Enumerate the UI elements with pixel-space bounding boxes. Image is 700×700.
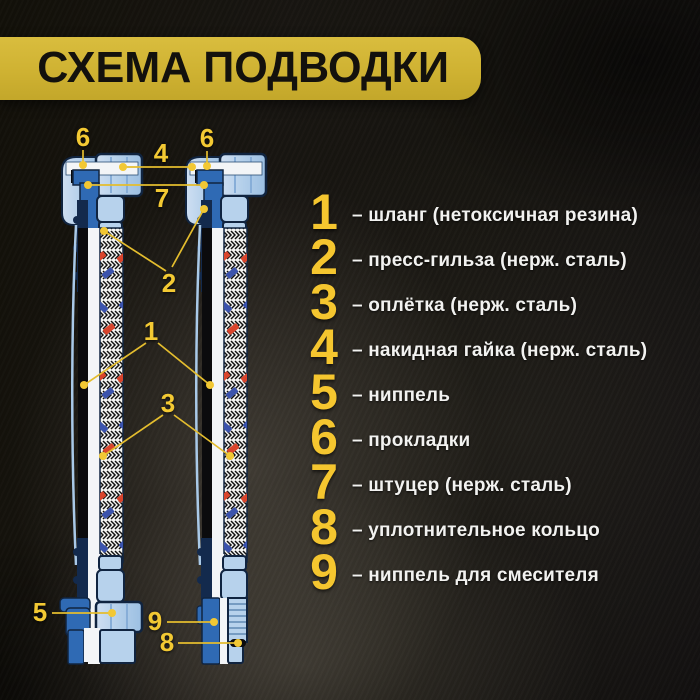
legend-label: – оплётка (нерж. сталь)	[352, 288, 577, 317]
legend-item: 4 – накидная гайка (нерж. сталь)	[306, 325, 698, 370]
legend-item: 1 – шланг (нетоксичная резина)	[306, 190, 698, 235]
legend-item: 5 – ниппель	[306, 370, 698, 415]
callout-label-1: 1	[144, 318, 158, 344]
infographic: СХЕМА ПОДВОДКИ	[0, 0, 700, 700]
legend-label: – штуцер (нерж. сталь)	[352, 468, 572, 497]
callout-label-3: 3	[161, 390, 175, 416]
legend-item: 3 – оплётка (нерж. сталь)	[306, 280, 698, 325]
callout-label-4: 4	[154, 140, 168, 166]
callout-label-2: 2	[162, 270, 176, 296]
legend-item: 8 – уплотнительное кольцо	[306, 505, 698, 550]
legend-number: 9	[306, 550, 342, 595]
callout-label-8: 8	[160, 629, 174, 655]
legend-label: – шланг (нетоксичная резина)	[352, 198, 638, 227]
legend-label: – уплотнительное кольцо	[352, 513, 600, 542]
legend-label: – пресс-гильза (нерж. сталь)	[352, 243, 627, 272]
legend-label: – накидная гайка (нерж. сталь)	[352, 333, 647, 362]
callout-label-7: 7	[155, 185, 169, 211]
callout-label-5: 5	[33, 599, 47, 625]
legend-label: – прокладки	[352, 423, 470, 452]
legend-item: 6 – прокладки	[306, 415, 698, 460]
legend-item: 2 – пресс-гильза (нерж. сталь)	[306, 235, 698, 280]
callout-label-6-right: 6	[200, 125, 214, 151]
left-hose-bottom-fitting	[60, 538, 142, 664]
legend-label: – ниппель	[352, 378, 450, 407]
callout-label-6-left: 6	[76, 124, 90, 150]
legend: 1 – шланг (нетоксичная резина) 2 – пресс…	[306, 190, 698, 595]
legend-item: 7 – штуцер (нерж. сталь)	[306, 460, 698, 505]
right-hose	[186, 154, 266, 664]
legend-label: – ниппель для смесителя	[352, 558, 599, 587]
legend-item: 9 – ниппель для смесителя	[306, 550, 698, 595]
